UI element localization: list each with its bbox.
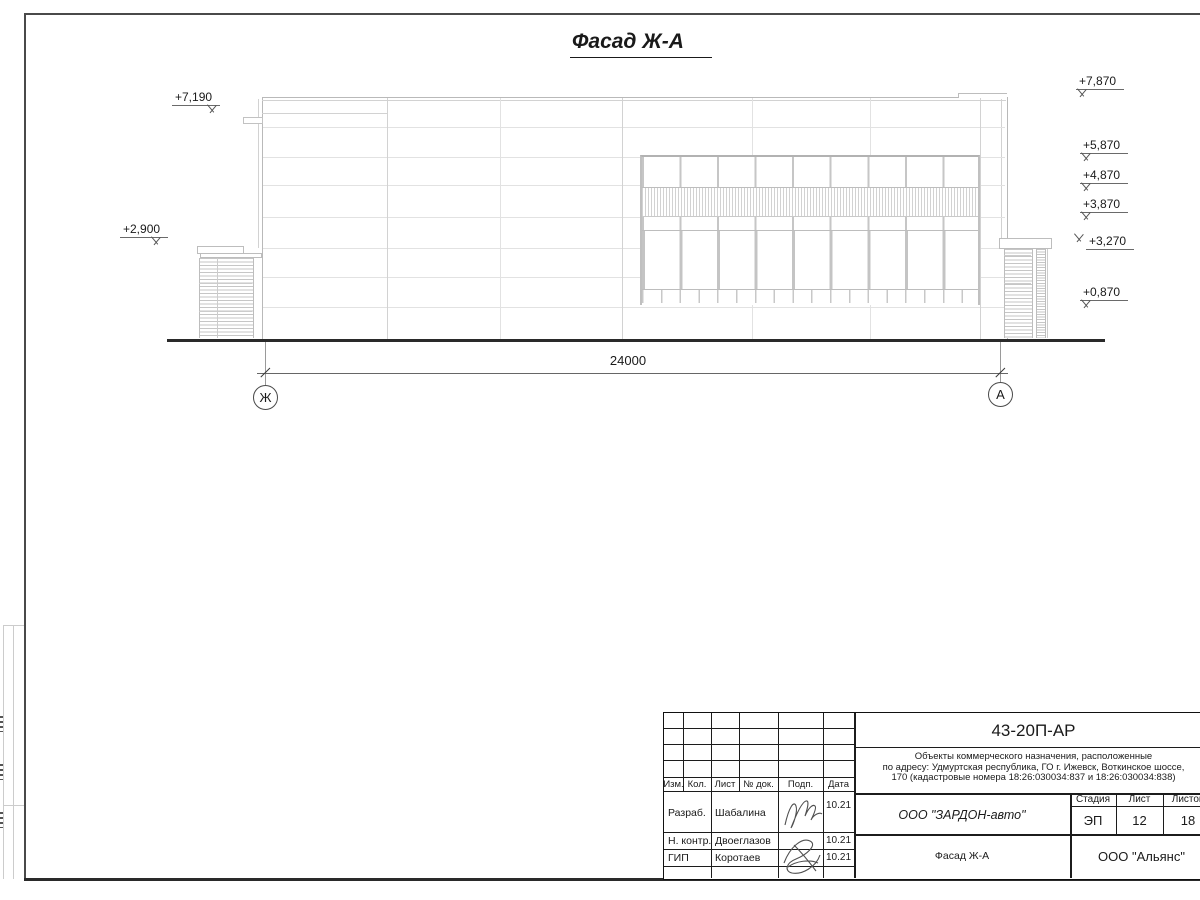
grid-line <box>664 744 854 745</box>
window-row-lower <box>642 290 978 303</box>
elevation-value: +4,870 <box>1080 168 1128 184</box>
frame-left <box>24 13 26 880</box>
margin-line <box>13 625 14 879</box>
parapet-line <box>262 100 1006 101</box>
elevation-arrow-icon <box>1080 300 1091 308</box>
elevation-marker: +3,270 <box>1086 234 1134 250</box>
elevation-value: +2,900 <box>120 222 168 238</box>
sign-name: Коротаев <box>711 849 782 866</box>
wall-joint <box>500 98 501 341</box>
elevation-value: +5,870 <box>1080 138 1128 154</box>
elevation-arrow-icon <box>1080 153 1091 161</box>
sign-date: 10.21 <box>823 797 854 813</box>
elevation-arrow-icon <box>1080 212 1091 220</box>
elevation-marker: +5,870 <box>1080 138 1128 154</box>
stage-label: Стадия <box>1070 793 1116 806</box>
col-header-doc: № док. <box>739 777 778 791</box>
description-line: Объекты коммерческого назначения, распол… <box>854 752 1200 763</box>
sign-name: Двоеглазов <box>711 832 782 849</box>
sheets-label: Листов <box>1163 793 1200 806</box>
parapet-step <box>958 93 1007 98</box>
axis-bubble-zh: Ж <box>253 385 278 410</box>
window-row-upper <box>642 157 978 188</box>
org-name: ООО "Альянс" <box>1070 834 1200 878</box>
elevation-arrow-icon <box>150 237 161 245</box>
louver-separator <box>199 311 252 312</box>
margin-stamp-fragment <box>0 716 3 732</box>
drawing-title: Фасад Ж-А <box>570 30 712 58</box>
margin-stamp-fragment <box>0 764 3 780</box>
window-row-main <box>642 231 978 290</box>
drawing-sheet: { "title": "Фасад Ж-А", "facade": { "dim… <box>0 0 1200 900</box>
frame-top <box>24 13 1200 15</box>
sheet-label: Лист <box>1116 793 1163 806</box>
window-row-transom <box>642 217 978 231</box>
margin-line <box>3 805 24 806</box>
margin-stamp-fragment <box>0 812 3 828</box>
sign-role: Разраб. <box>664 793 715 832</box>
grid-line <box>664 760 854 761</box>
dimension-label: 24000 <box>578 353 678 368</box>
elevation-arrow-icon <box>1073 234 1084 242</box>
stage-value: ЭП <box>1070 806 1116 834</box>
col-header-data: Дата <box>823 777 854 791</box>
doc-number: 43-20П-АР <box>854 717 1200 745</box>
elevation-marker: +2,900 <box>120 222 168 238</box>
elevation-marker: +4,870 <box>1080 168 1128 184</box>
dimension-line <box>257 373 1008 374</box>
axis-bubble-a: А <box>988 382 1013 407</box>
right-louver <box>1004 249 1033 338</box>
elevation-marker: +7,870 <box>1076 74 1124 90</box>
col-header-kol: Кол. <box>683 777 711 791</box>
elevation-marker: +0,870 <box>1080 285 1128 301</box>
elevation-value: +7,870 <box>1076 74 1124 90</box>
wall-joint <box>387 98 388 341</box>
left-louver <box>199 258 254 338</box>
parapet-band-line <box>262 113 388 114</box>
extension-line <box>1000 342 1001 382</box>
sign-date: 10.21 <box>823 832 854 849</box>
floor-line <box>263 127 1005 128</box>
sheets-value: 18 <box>1163 806 1200 834</box>
ground-line <box>167 339 1105 342</box>
right-louver-cap <box>999 238 1052 249</box>
elevation-marker: +3,870 <box>1080 197 1128 213</box>
elevation-value: +3,270 <box>1086 234 1134 250</box>
louver-separator <box>199 283 252 284</box>
wall-joint <box>980 98 981 341</box>
margin-line <box>3 625 24 626</box>
louver-separator <box>1004 283 1031 284</box>
wall-joint <box>622 98 623 341</box>
elevation-arrow-icon <box>1076 89 1087 97</box>
signature-icon <box>776 833 824 882</box>
description-line: 170 (кадастровые номера 18:26:030034:837… <box>854 773 1200 784</box>
elevation-arrow-icon <box>1080 183 1091 191</box>
sheet-title: Фасад Ж-А <box>854 834 1070 878</box>
elevation-marker: +7,190 <box>172 90 220 106</box>
canopy-tab <box>243 117 263 124</box>
col-header-podp: Подп. <box>778 777 823 791</box>
elevation-value: +7,190 <box>172 90 220 106</box>
margin-line <box>3 625 4 879</box>
elevation-value: +0,870 <box>1080 285 1128 301</box>
designer-company: ООО "ЗАРДОН-авто" <box>854 795 1070 834</box>
grid-line <box>664 728 854 729</box>
right-louver-narrow <box>1036 249 1046 338</box>
grid-line <box>854 747 1200 748</box>
louver-edge <box>1047 249 1048 338</box>
sheet-value: 12 <box>1116 806 1163 834</box>
window-block <box>640 155 980 305</box>
col-header-izm: Изм. <box>664 777 683 791</box>
project-description: Объекты коммерческого назначения, распол… <box>854 750 1200 793</box>
floor-line <box>263 307 1005 308</box>
sign-name: Шабалина <box>711 793 782 832</box>
grid-line <box>664 866 854 867</box>
elevation-value: +3,870 <box>1080 197 1128 213</box>
sign-date: 10.21 <box>823 849 854 866</box>
louver-divider <box>217 258 218 338</box>
elevation-arrow-icon <box>206 105 217 113</box>
sign-role: ГИП <box>664 849 715 866</box>
signature-icon <box>780 795 823 838</box>
louver-separator <box>1004 255 1031 256</box>
col-header-list: Лист <box>711 777 739 791</box>
title-block: Изм. Кол. Лист № док. Подп. Дата Разраб.… <box>663 712 1200 880</box>
sign-role: Н. контр. <box>664 832 715 849</box>
hatched-band <box>642 188 978 217</box>
extension-line <box>265 342 266 385</box>
